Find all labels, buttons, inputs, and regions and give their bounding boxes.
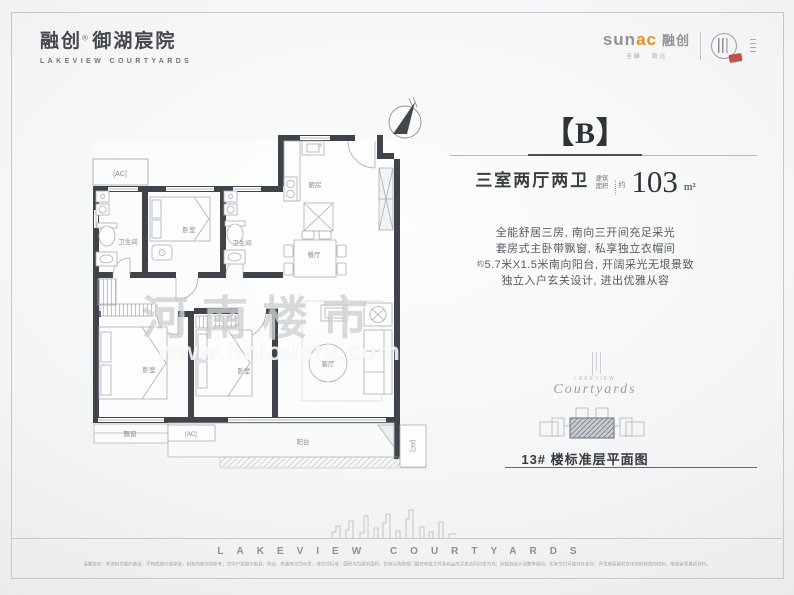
footer-divider (11, 538, 782, 539)
sunac-logo-group: sunac融创 至臻 · 致远 (603, 30, 756, 62)
seal-icon (711, 33, 737, 59)
label-dining: 餐厅 (308, 250, 322, 259)
script-watermark-word: Courtyards (540, 382, 650, 398)
brand-logo: 融创® 御湖宸院 LAKEVIEW COURTYARDS (40, 26, 192, 65)
ac-label-right: [AC] (409, 440, 415, 452)
label-balcony: 阳台 (297, 437, 310, 446)
floor-caption-rule (505, 467, 757, 468)
area-word-bottom: 面积 (596, 183, 609, 190)
label-kitchen: 厨房 (309, 180, 322, 189)
compass-icon: N (389, 97, 427, 138)
label-bed-top: 卧室 (183, 225, 197, 234)
desc-line-4: 独立入户玄关设计, 进出优雅从容 (428, 274, 743, 290)
sunac-sun: sun (603, 30, 636, 49)
label-bath1: 卫生间 (118, 237, 138, 246)
area-approx: 约 (615, 180, 625, 195)
sunac-cn: 融创 (662, 33, 690, 48)
sunac-slogan: 至臻 · 致远 (609, 52, 683, 61)
brand-logo-cn: 融创 (40, 31, 82, 52)
desc-line-2: 套房式主卧带飘窗, 私享独立衣帽间 (428, 242, 743, 258)
area-value: 103 (631, 170, 678, 195)
script-watermark-lines (540, 352, 650, 376)
header-divider (700, 32, 701, 60)
brand-logo-en: LAKEVIEW COURTYARDS (40, 58, 192, 65)
ac-label-top: [AC] (113, 171, 127, 178)
floor-caption: 13# 楼标准层平面图 (460, 449, 710, 468)
elevator-shaft (379, 168, 393, 230)
brand-logo-name: 御湖宸院 (92, 31, 176, 52)
registered-mark: ® (82, 34, 88, 43)
layout-label: 三室两厅两卫 (475, 166, 589, 195)
ac-label-bottom: [AC] (185, 432, 197, 438)
footer-wordmark: LAKEVIEW COURTYARDS (0, 546, 794, 557)
footer-disclaimer: 温馨提示：本资料为要约邀请，不构成要约或承诺，相关内容仅供参考；文中户型图中家具… (83, 561, 710, 567)
skyline-icon (328, 506, 456, 539)
ac-box-top: [AC] (93, 159, 148, 185)
poster: 融创® 御湖宸院 LAKEVIEW COURTYARDS sunac融创 至臻 … (0, 0, 794, 595)
label-bed-mid: 卧室 (238, 366, 252, 375)
unit-description: 全能舒居三房, 南向三开间充足采光 套房式主卧带飘窗, 私享独立衣帽间 约5.7… (428, 226, 743, 289)
desc-line-3: 约5.7米X1.5米南向阳台, 开阔采光无垠景致 (428, 257, 743, 274)
script-watermark: LAKEVIEW Courtyards (540, 352, 650, 398)
unit-subtitle: 三室两厅两卫 建筑 面积 约 103 m² (428, 166, 743, 195)
label-bed-left: 卧室 (143, 365, 157, 374)
watermark-url: www.hnloushi.com (158, 338, 401, 367)
label-bay-window: 飘窗 (124, 429, 137, 438)
seal-red-stamp-icon (728, 53, 742, 63)
area-unit: m² (684, 181, 696, 195)
desc-line-1: 全能舒居三房, 南向三开间充足采光 (428, 226, 743, 242)
sunac-logo: sunac融创 至臻 · 致远 (603, 30, 690, 62)
label-bath2: 卫生间 (232, 238, 252, 247)
unit-badge: 【B】 (428, 108, 743, 152)
area-note: 建筑 面积 (596, 176, 609, 195)
building-footprint (536, 400, 648, 448)
seal-bars-icon (718, 38, 729, 53)
area-word-top: 建筑 (596, 176, 609, 183)
sunac-ac: ac (636, 30, 657, 49)
panel-divider-accent (528, 154, 642, 157)
seal-microtext-icon (750, 39, 756, 53)
compass-n-label: N (421, 98, 427, 107)
